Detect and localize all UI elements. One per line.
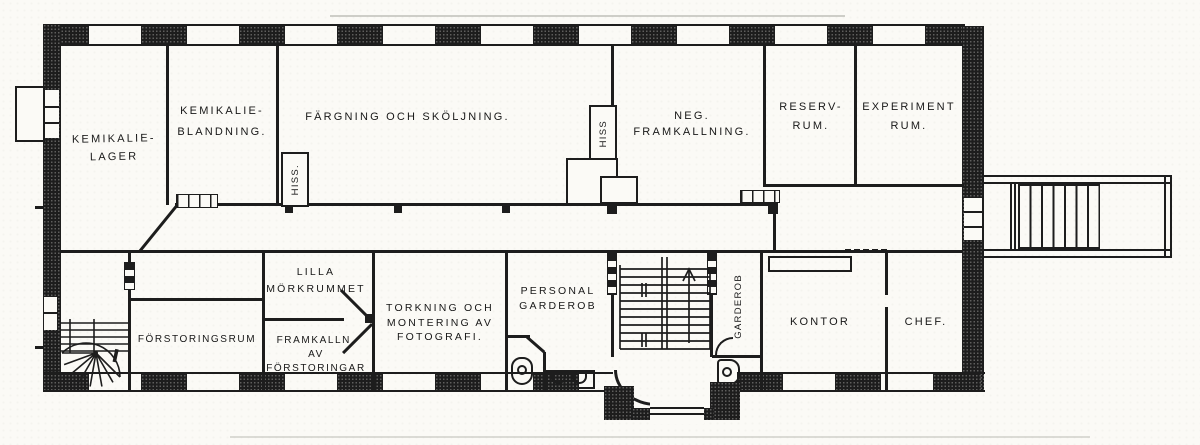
entrance-step xyxy=(650,407,704,409)
bay-window-west xyxy=(15,86,45,142)
wall-tick xyxy=(35,206,43,209)
window-west-lower xyxy=(44,297,57,330)
eaves-line xyxy=(330,15,845,17)
room-label-reservrum: RESERV- RUM. xyxy=(766,98,856,136)
duct-closet-notch xyxy=(600,176,638,204)
toilet-icon xyxy=(511,357,533,385)
door-post xyxy=(394,205,402,213)
wall-morkrum-torkning xyxy=(372,253,375,392)
room-label-chef: CHEF. xyxy=(890,315,962,331)
ladder-symbol xyxy=(124,262,135,290)
wall-reserv-experiment-south xyxy=(763,184,964,187)
stairhall-wall-west xyxy=(611,295,614,357)
corridor-east-steps xyxy=(740,190,780,203)
ext-stair-end xyxy=(1164,175,1172,258)
elevator-shaft-1: HISS. xyxy=(281,152,309,207)
door-post xyxy=(502,205,510,213)
exterior-wall-south-right xyxy=(737,372,985,392)
room-garderob: GARDEROB xyxy=(718,260,758,352)
room-label-garderob: GARDEROB xyxy=(733,274,744,339)
window-east-mullion xyxy=(964,226,982,228)
bay-window-mullion xyxy=(45,106,59,108)
central-staircase xyxy=(616,253,714,357)
corridor-diagonal-wall xyxy=(138,203,179,253)
room-label-framkallning: FRAMKALLN. AV FÖRSTORINGAR xyxy=(264,334,368,376)
window-east xyxy=(964,198,982,240)
room-label-torkning: TORKNING OCH MONTERING AV FOTOGRAFI. xyxy=(378,301,502,345)
elevator-1-label: HISS. xyxy=(290,164,301,195)
elevator-2-label: HISS xyxy=(598,120,609,147)
room-label-personal-garderob: PERSONAL GARDEROB xyxy=(508,284,608,314)
ext-stair-landing-wall xyxy=(1010,183,1016,249)
wall-garderob-kontor xyxy=(760,253,763,392)
vestibule-wall-east xyxy=(710,382,740,420)
winding-staircase xyxy=(58,295,134,390)
wall-tick xyxy=(35,346,43,349)
window-west-lower-mullion xyxy=(44,312,57,314)
dashed-wall xyxy=(845,249,887,251)
garderob-south-wall xyxy=(712,355,762,358)
wall-lilla-framkalln xyxy=(262,318,344,321)
room-label-kemikalie-lager: KEMIKALIE- LAGER xyxy=(56,129,173,167)
corridor-north-wall xyxy=(175,203,778,206)
floor-plan: HISS. HISS xyxy=(0,0,1200,445)
room-label-neg-framkallning: NEG. FRAMKALLNING. xyxy=(632,108,752,140)
room-label-forstoringsrum: FÖRSTORINGSRUM xyxy=(133,333,261,348)
sink-unit-icon xyxy=(545,370,595,389)
room-label-fargning: FÄRGNING OCH SKÖLJNING. xyxy=(300,110,515,126)
wall-kontor-chef-lower xyxy=(885,307,888,392)
elevator-shaft-2: HISS xyxy=(589,105,617,162)
kontor-nook xyxy=(768,256,852,272)
corridor-west-steps xyxy=(176,194,218,208)
scan-artifact-line xyxy=(230,436,1090,438)
door-post xyxy=(768,204,778,214)
room-label-lilla-morkrummet: LILLA MÖRKRUMMET xyxy=(264,264,368,298)
bay-window-mullion xyxy=(45,122,59,124)
room-label-kemikalie-blandning: KEMIKALIE- BLANDNING. xyxy=(166,101,278,143)
exterior-wall-north xyxy=(43,24,965,46)
wc-partition-diagonal xyxy=(526,336,545,353)
ext-stair-treads xyxy=(1018,184,1100,249)
corridor-south-wall xyxy=(60,250,963,253)
ext-stair-rail-south xyxy=(984,249,1172,258)
wall-kontor-chef-upper xyxy=(885,253,888,295)
vestibule-wall-west xyxy=(604,386,634,420)
wall-torkning-personal xyxy=(505,253,508,392)
window-east-mullion xyxy=(964,211,982,213)
room-label-experimentrum: EXPERIMENT RUM. xyxy=(856,98,962,136)
entrance-step xyxy=(650,413,704,415)
wall-forstoringsrum-north xyxy=(130,298,262,301)
room-label-kontor: KONTOR xyxy=(770,315,870,331)
door-post xyxy=(607,204,617,214)
